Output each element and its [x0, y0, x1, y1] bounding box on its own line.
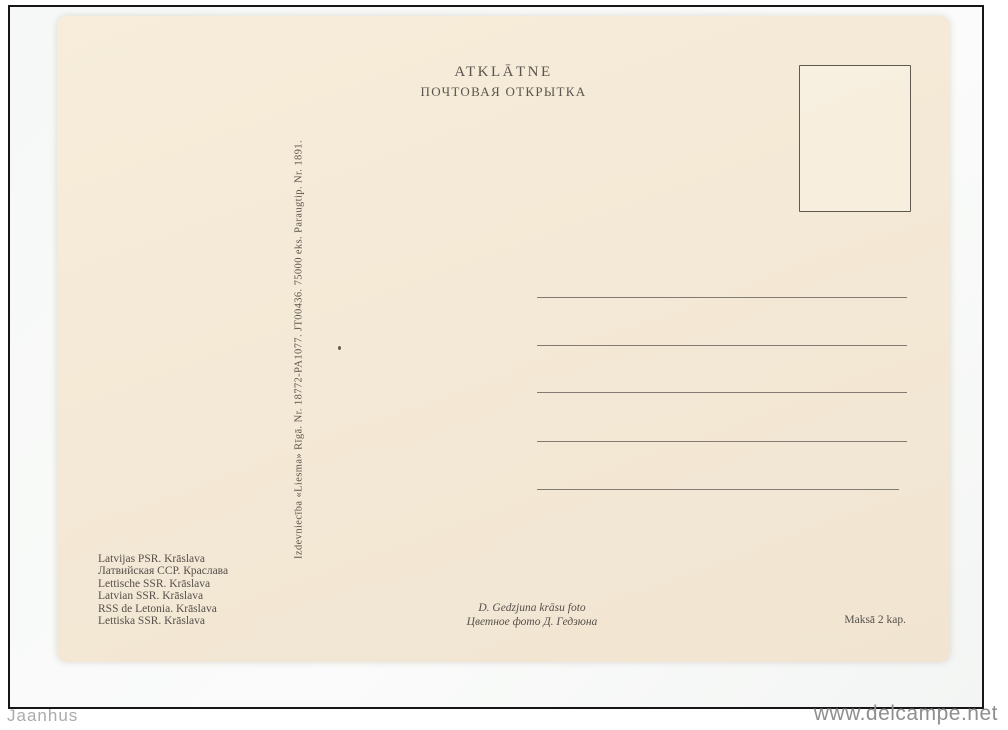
dust-speck [338, 346, 341, 350]
address-line [537, 297, 907, 298]
watermark-left: Jaanhus [7, 706, 78, 726]
address-line [537, 489, 899, 490]
address-lines [537, 16, 907, 662]
caption-line: RSS de Letonia. Krāslava [98, 603, 228, 615]
photo-credit-russian: Цветное фото Д. Гедзюна [387, 615, 677, 629]
caption-line: Latvijas PSR. Krāslava [98, 553, 228, 565]
caption-block: Latvijas PSR. Krāslava Латвийская ССР. К… [98, 553, 228, 627]
address-line [537, 345, 907, 346]
postcard-back: ATKLĀTNE ПОЧТОВАЯ ОТКРЫТКА Izdevniecība … [57, 16, 950, 662]
address-line [537, 441, 907, 442]
caption-line: Latvian SSR. Krāslava [98, 590, 228, 602]
caption-line: Латвийская ССР. Краслава [98, 565, 228, 577]
scanned-postcard-page: ATKLĀTNE ПОЧТОВАЯ ОТКРЫТКА Izdevniecība … [0, 0, 1008, 730]
scan-frame: ATKLĀTNE ПОЧТОВАЯ ОТКРЫТКА Izdevniecība … [8, 5, 984, 709]
price-label: Maksā 2 kap. [844, 614, 906, 626]
address-line [537, 392, 907, 393]
watermark-right: www.delcampe.net [814, 702, 998, 726]
caption-line: Lettische SSR. Krāslava [98, 578, 228, 590]
publisher-imprint: Izdevniecība «Liesma» Rīgā. Nr. 18772-PA… [294, 130, 311, 570]
caption-line: Lettiska SSR. Krāslava [98, 615, 228, 627]
photo-credit-latvian: D. Gedzjuna krāsu foto [387, 601, 677, 615]
photo-credit: D. Gedzjuna krāsu foto Цветное фото Д. Г… [387, 601, 677, 629]
